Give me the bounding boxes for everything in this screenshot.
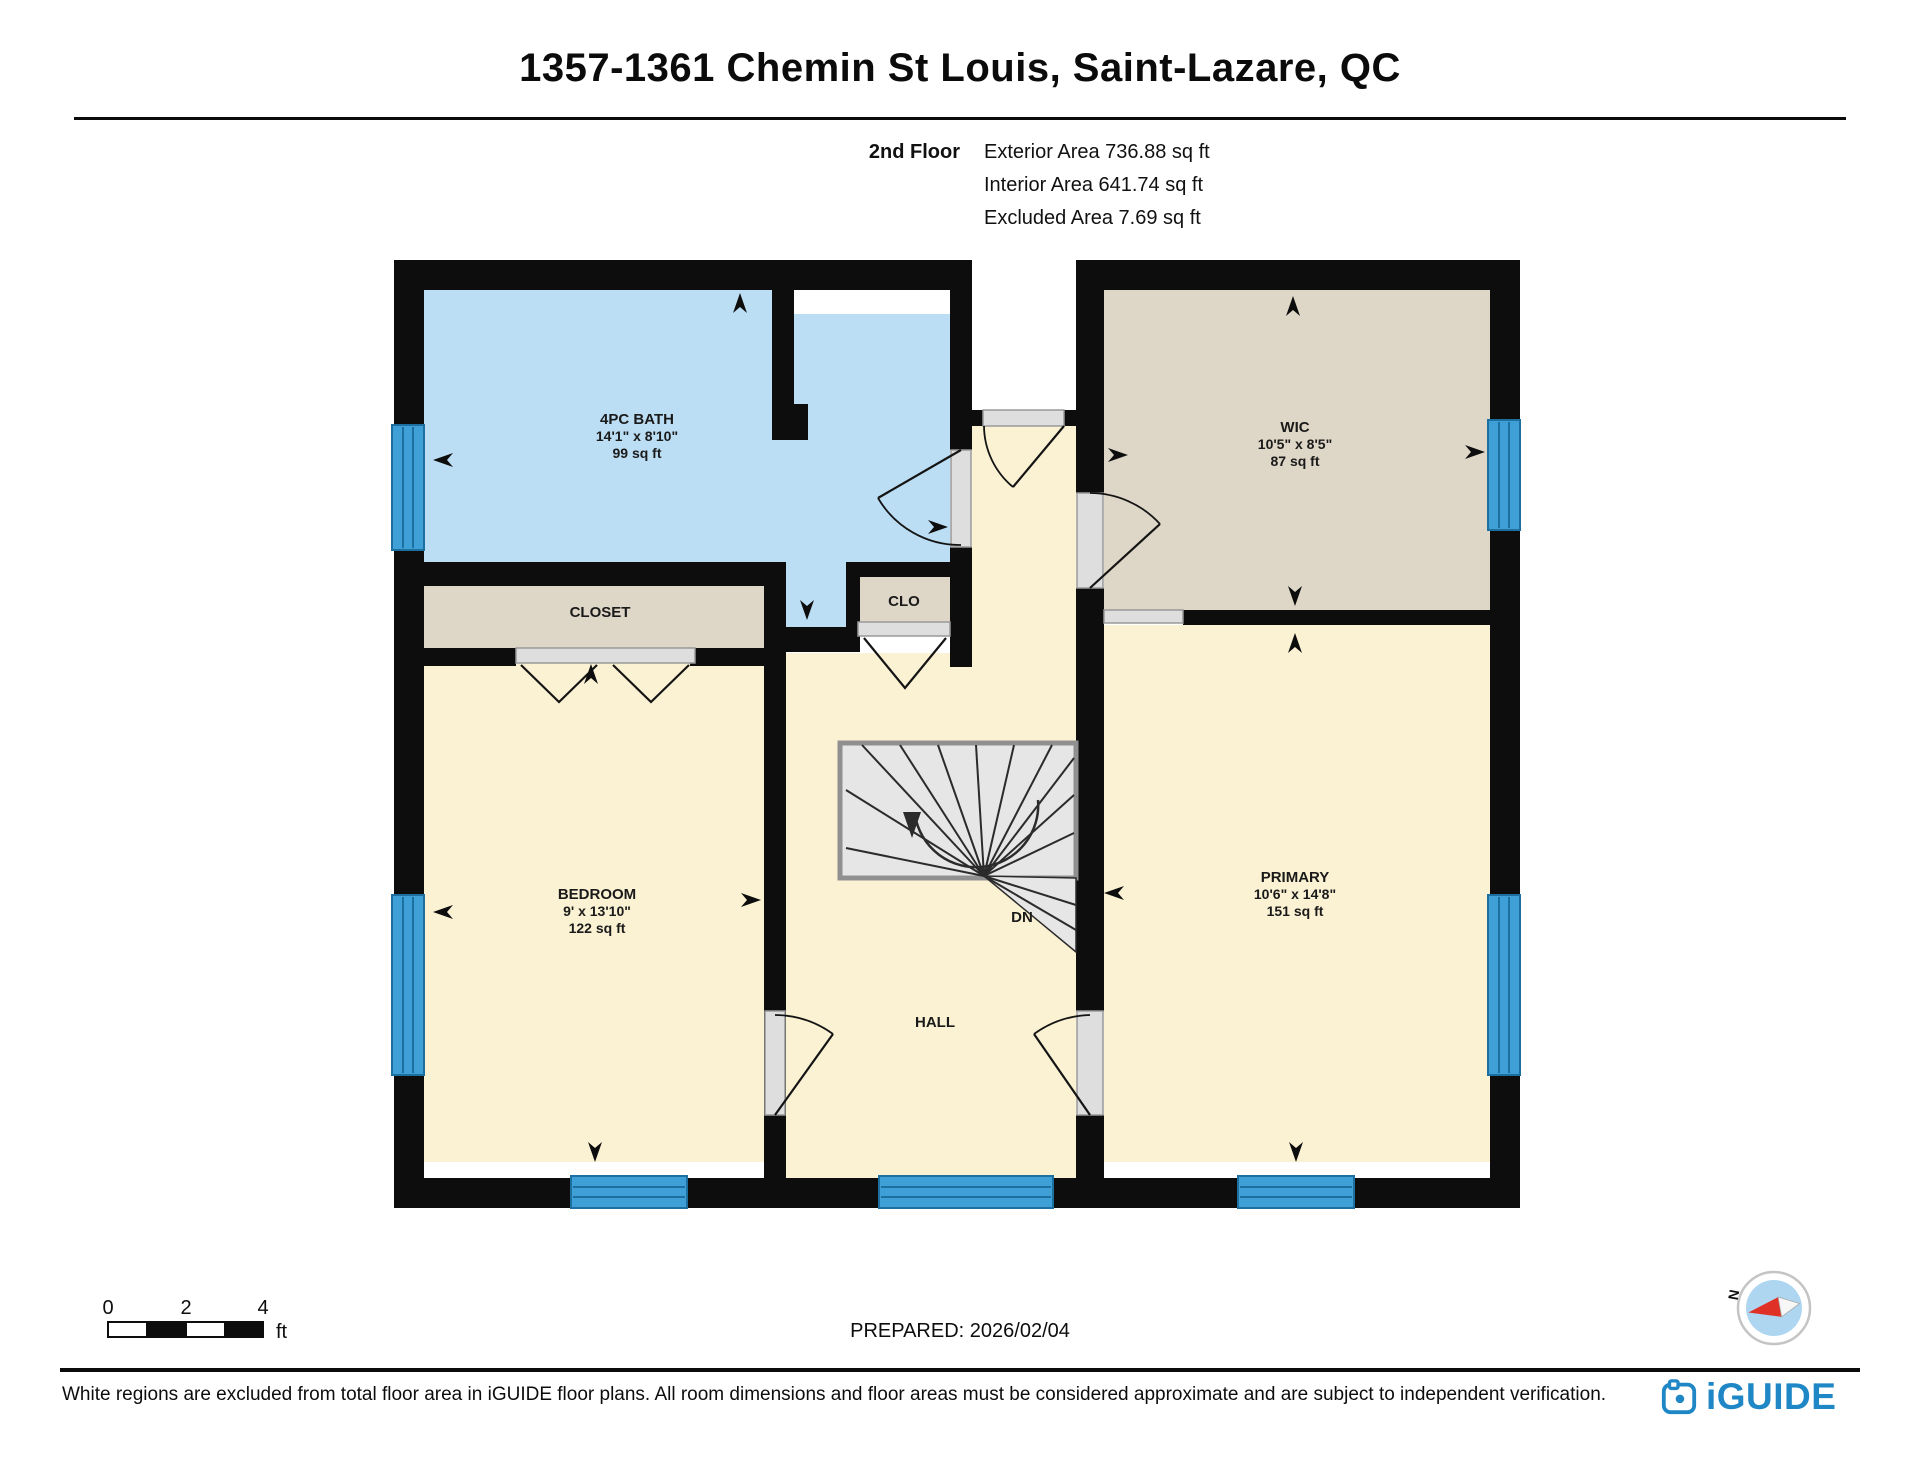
floorplan-drawing: 4PC BATH 14'1" x 8'10" 99 sq ft WIC 10'5… [380, 248, 1540, 1220]
hall-top-wall-piece-left [972, 410, 984, 426]
scale-bar: 0 2 4 ft [80, 1290, 320, 1350]
stairs-box [840, 743, 1076, 878]
scale-tick-0: 0 [102, 1297, 113, 1319]
scale-tick-4: 4 [257, 1297, 268, 1319]
bath-bottom-wall [424, 562, 782, 586]
prepared-date: PREPARED: 2026/02/04 [660, 1320, 1260, 1343]
iguide-logo: iGUIDE [1660, 1376, 1860, 1418]
clo-door-sill [858, 622, 950, 636]
window-bedroom-left [392, 895, 424, 1075]
bath-stub-foot [772, 404, 808, 440]
floor-area-stats: Exterior Area 736.88 sq ft Interior Area… [984, 136, 1404, 235]
corridor-door-sill [983, 410, 1064, 426]
scale-segment-3 [186, 1322, 225, 1337]
scale-segment-1 [108, 1322, 147, 1337]
page-title: 1357-1361 Chemin St Louis, Saint-Lazare,… [0, 46, 1920, 91]
iguide-logo-text: iGUIDE [1706, 1376, 1836, 1418]
window-primary-right [1488, 895, 1520, 1075]
scale-segment-2 [147, 1322, 186, 1337]
hall-label: HALL [915, 1014, 955, 1031]
wic-dims: 10'5" x 8'5" [1258, 436, 1332, 452]
closet-door-sill [516, 648, 695, 663]
closet-front-wall-left [424, 648, 516, 666]
bedroom-door-sill [765, 1011, 785, 1115]
hall-right-wall-upper [1076, 290, 1104, 493]
nook-bottom-wall [782, 627, 846, 652]
hall-right-wall-lower [1076, 1115, 1104, 1178]
floorplan-page: 1357-1361 Chemin St Louis, Saint-Lazare,… [0, 0, 1920, 1483]
iguide-logo-icon [1660, 1378, 1698, 1416]
stairs-dn-label: DN [1011, 909, 1033, 926]
hall-left-wall-lower [950, 547, 972, 667]
closet-label: CLOSET [570, 604, 631, 621]
window-primary-bottom [1238, 1176, 1354, 1208]
wall-top-right [1076, 260, 1520, 290]
bath-floor [424, 290, 950, 562]
excluded-area: Excluded Area 7.69 sq ft [984, 202, 1404, 235]
bath-door-sill [951, 450, 971, 547]
window-bath-left [392, 425, 424, 550]
wic-door-sill [1077, 493, 1103, 588]
bath-area: 99 sq ft [612, 445, 661, 461]
wic-area: 87 sq ft [1270, 453, 1319, 469]
closet-front-wall-right [690, 648, 772, 666]
footer-divider [60, 1368, 1860, 1372]
wic-label: WIC [1280, 419, 1309, 436]
window-hall-bottom [879, 1176, 1053, 1208]
scale-unit: ft [276, 1321, 288, 1343]
floor-label: 2nd Floor [640, 136, 960, 169]
scale-segment-4 [225, 1322, 263, 1337]
excluded-white-corridor [972, 250, 1076, 426]
bath-label: 4PC BATH [600, 411, 674, 428]
bedroom-area: 122 sq ft [569, 920, 626, 936]
primary-dims: 10'6" x 14'8" [1254, 886, 1336, 902]
window-bedroom-bottom [571, 1176, 687, 1208]
primary-label: PRIMARY [1261, 869, 1330, 886]
disclaimer-text: White regions are excluded from total fl… [62, 1384, 1622, 1406]
scale-tick-2: 2 [180, 1297, 191, 1319]
primary-door-sill [1077, 1011, 1103, 1115]
primary-area: 151 sq ft [1267, 903, 1324, 919]
wic-primary-opening-sill [1104, 610, 1183, 623]
wic-primary-wall [1183, 610, 1490, 625]
exterior-area: Exterior Area 736.88 sq ft [984, 136, 1404, 169]
wall-top-left [394, 260, 972, 290]
bedroom-dims: 9' x 13'10" [563, 903, 631, 919]
header-divider [74, 117, 1846, 120]
interior-area: Interior Area 641.74 sq ft [984, 169, 1404, 202]
clo-label: CLO [888, 593, 920, 610]
excluded-white-band [794, 290, 950, 314]
bedroom-label: BEDROOM [558, 886, 636, 903]
bath-dims: 14'1" x 8'10" [596, 428, 678, 444]
hall-right-wall-mid [1076, 588, 1104, 1011]
window-wic-right [1488, 420, 1520, 530]
compass: N [1712, 1258, 1832, 1358]
bath-stub-wall [772, 290, 794, 416]
compass-north-label: N [1725, 1288, 1743, 1301]
hall-left-wall-upper [950, 290, 972, 450]
bath-nook-floor [782, 562, 847, 627]
